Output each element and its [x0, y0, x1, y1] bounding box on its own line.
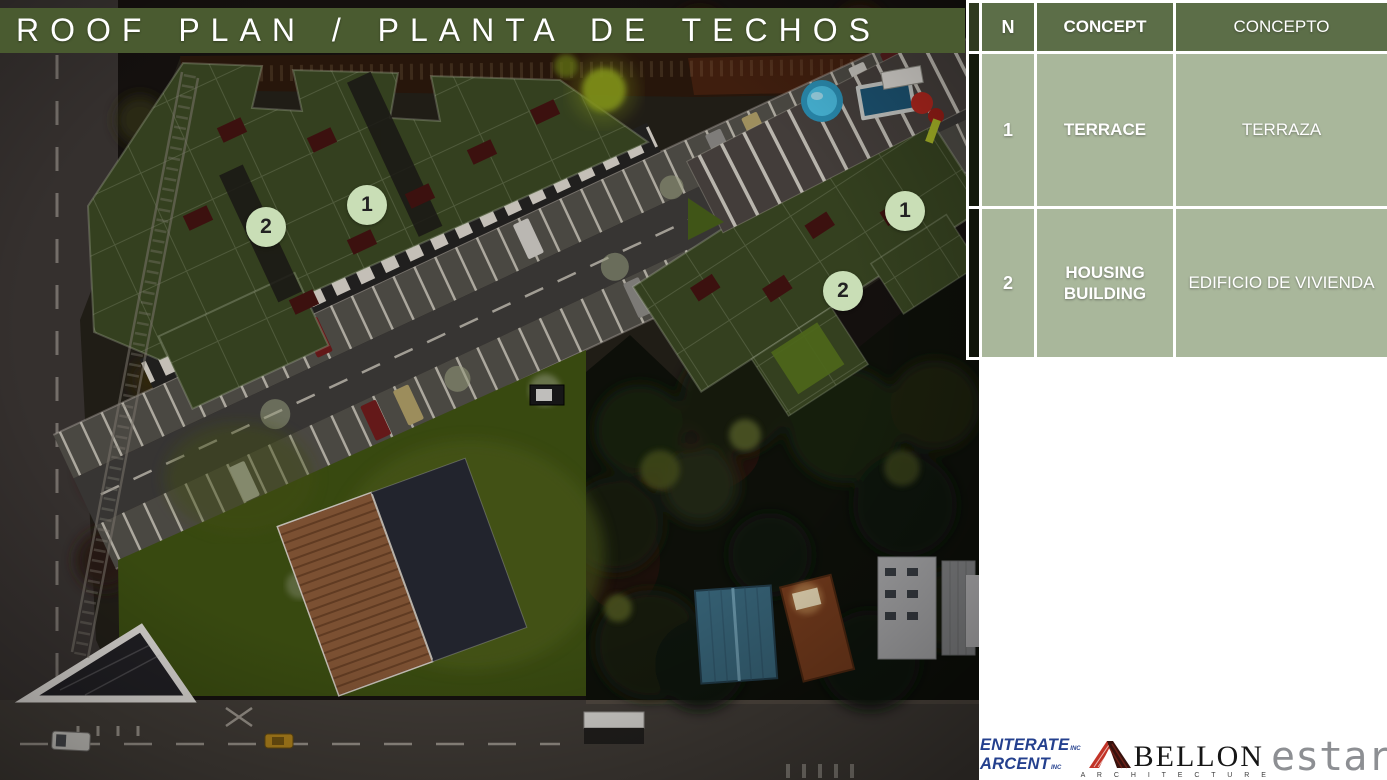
legend-header-concept: CONCEPT: [1037, 3, 1173, 51]
legend-row2-concept: HOUSING BUILDING: [1037, 209, 1173, 357]
logo-bellon: BELLON A R C H I T E C T U R E: [1081, 736, 1271, 779]
legend-row2-concepto: EDIFICIO DE VIVIENDA: [1176, 209, 1387, 357]
footer-logos: ENTERATEINC ARCENTINC BELLON A R C H I T…: [980, 736, 1383, 778]
legend-row1-concept: TERRACE: [1037, 54, 1173, 206]
roof-plan-render: [0, 0, 979, 780]
legend-row1-concepto: TERRAZA: [1176, 54, 1387, 206]
legend-table: N CONCEPT CONCEPTO 1 TERRACE TERRAZA 2 H…: [966, 0, 1387, 360]
inc-suffix: INC: [1070, 746, 1080, 752]
plan-marker-terrace-left: 1: [347, 185, 387, 225]
legend-header-n: N: [982, 3, 1034, 51]
page-title: ROOF PLAN / PLANTA DE TECHOS: [16, 12, 881, 49]
logo-enterate-arcent: ENTERATEINC ARCENTINC: [980, 738, 1081, 776]
logo-estar: estar: [1271, 737, 1387, 777]
legend-gap-header: [969, 3, 979, 51]
bellon-subtitle: A R C H I T E C T U R E: [1081, 772, 1271, 779]
legend-gap-row2: [969, 209, 979, 357]
bellon-name: BELLON: [1134, 744, 1264, 770]
legend-row1-n: 1: [982, 54, 1034, 206]
plan-marker-housing-left: 2: [246, 207, 286, 247]
plan-marker-terrace-right: 1: [885, 191, 925, 231]
presentation-slide: ROOF PLAN / PLANTA DE TECHOS 2 1 1 2 N C…: [0, 0, 1387, 780]
enterate-line2: ARCENTINC: [980, 757, 1081, 776]
legend-header-concepto: CONCEPTO: [1176, 3, 1387, 51]
legend-row2-n: 2: [982, 209, 1034, 357]
title-bar: ROOF PLAN / PLANTA DE TECHOS: [0, 8, 965, 53]
inc-suffix: INC: [1051, 765, 1061, 771]
vignette: [0, 0, 979, 780]
bellon-roof-icon: [1088, 736, 1132, 770]
legend-gap-row1: [969, 54, 979, 206]
plan-marker-housing-right: 2: [823, 271, 863, 311]
